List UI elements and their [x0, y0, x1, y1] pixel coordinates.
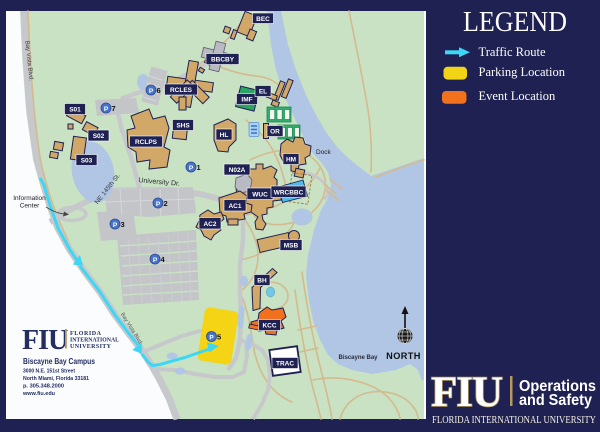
svg-text:P: P: [153, 257, 158, 264]
svg-text:KCC: KCC: [262, 323, 276, 330]
svg-text:OR: OR: [270, 129, 280, 136]
svg-text:BEC: BEC: [256, 16, 270, 23]
svg-text:FIU: FIU: [22, 325, 68, 356]
svg-text:FLORIDA: FLORIDA: [70, 331, 102, 337]
svg-text:EL: EL: [259, 89, 267, 96]
svg-text:FIU: FIU: [431, 369, 502, 416]
svg-text:6: 6: [157, 86, 161, 95]
svg-text:P: P: [149, 88, 154, 95]
svg-text:IMF: IMF: [241, 97, 252, 104]
svg-text:P: P: [113, 222, 118, 229]
svg-text:UNIVERSITY: UNIVERSITY: [70, 344, 112, 350]
svg-text:MSB: MSB: [284, 243, 299, 250]
svg-text:Information: Information: [13, 195, 46, 202]
svg-text:S01: S01: [69, 107, 81, 114]
svg-text:BH: BH: [257, 278, 267, 285]
svg-text:and Safety: and Safety: [519, 392, 592, 409]
svg-text:2: 2: [164, 199, 168, 208]
svg-text:AC1: AC1: [228, 203, 241, 210]
svg-text:5: 5: [217, 333, 221, 342]
svg-text:3: 3: [121, 220, 125, 229]
svg-text:FLORIDA INTERNATIONAL UNIVERSI: FLORIDA INTERNATIONAL UNIVERSITY: [432, 415, 596, 426]
svg-text:INTERNATIONAL: INTERNATIONAL: [70, 338, 119, 344]
svg-text:Parking Location: Parking Location: [479, 65, 566, 79]
svg-text:LEGEND: LEGEND: [463, 6, 567, 38]
svg-text:HM: HM: [286, 157, 296, 164]
svg-text:NORTH: NORTH: [386, 351, 421, 361]
svg-text:7: 7: [112, 104, 116, 113]
svg-text:Event Location: Event Location: [479, 89, 556, 103]
svg-text:RCLES: RCLES: [170, 87, 193, 94]
svg-text:P: P: [209, 334, 214, 341]
svg-text:Dock: Dock: [316, 149, 332, 156]
svg-text:TRAC: TRAC: [276, 361, 294, 368]
svg-text:S03: S03: [81, 158, 93, 165]
svg-text:p. 305.348.2000: p. 305.348.2000: [23, 384, 64, 390]
svg-text:North Miami, Florida 33181: North Miami, Florida 33181: [23, 376, 90, 382]
svg-text:BBCBY: BBCBY: [211, 57, 235, 64]
svg-text:3000 N.E. 151st Street: 3000 N.E. 151st Street: [23, 369, 75, 375]
svg-text:P: P: [156, 201, 161, 208]
svg-text:S02: S02: [93, 133, 105, 140]
svg-text:P: P: [104, 106, 109, 113]
svg-text:Biscayne Bay Campus: Biscayne Bay Campus: [23, 356, 95, 366]
svg-text:WRCBBC: WRCBBC: [274, 190, 304, 197]
svg-text:AC2: AC2: [203, 221, 216, 228]
svg-text:WUC: WUC: [252, 192, 268, 199]
svg-text:RCLPS: RCLPS: [135, 139, 158, 146]
svg-text:www.fiu.edu: www.fiu.edu: [22, 391, 55, 397]
svg-text:SHS: SHS: [176, 123, 190, 130]
svg-text:1: 1: [197, 163, 201, 172]
svg-text:Biscayne Bay: Biscayne Bay: [338, 355, 378, 361]
svg-text:P: P: [189, 165, 194, 172]
svg-text:Center: Center: [20, 203, 40, 210]
svg-text:HL: HL: [220, 132, 229, 139]
svg-text:N02A: N02A: [229, 167, 246, 174]
svg-text:Traffic Route: Traffic Route: [479, 45, 546, 59]
